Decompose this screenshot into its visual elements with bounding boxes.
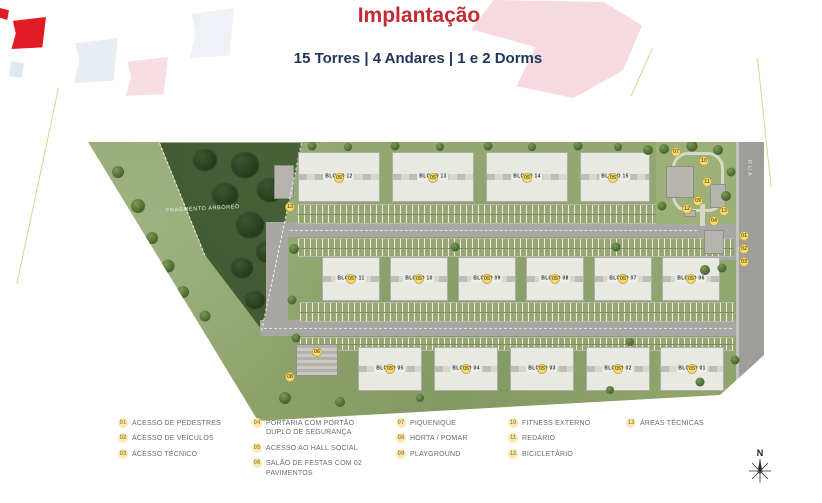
legend-item-label: ACESSO DE PEDESTRES bbox=[132, 418, 221, 428]
legend-num-badge: 01 bbox=[118, 418, 128, 428]
legend-column: 04PORTARIA COM PORTÃO DUPLO DE SEGURANÇA… bbox=[252, 418, 368, 483]
legend-item-label: ÁREAS TÉCNICAS bbox=[640, 418, 704, 428]
legend-column: 07PIQUENIQUE08HORTA / POMAR09PLAYGROUND bbox=[396, 418, 512, 464]
map-marker-05: 05 bbox=[428, 173, 438, 183]
tree-icon bbox=[606, 386, 614, 394]
legend-item-label: PLAYGROUND bbox=[410, 449, 461, 459]
map-marker-05: 05 bbox=[334, 173, 344, 183]
map-marker-04: 04 bbox=[709, 216, 719, 226]
legend-item-13: 13ÁREAS TÉCNICAS bbox=[626, 418, 742, 428]
legend-num-badge: 02 bbox=[118, 433, 128, 443]
tree-icon bbox=[731, 356, 740, 365]
map-marker-02: 02 bbox=[739, 244, 749, 254]
map-marker-13: 13 bbox=[719, 206, 729, 216]
legend-num-badge: 07 bbox=[396, 418, 406, 428]
tree-icon bbox=[658, 202, 667, 211]
legend-item-label: ACESSO TÉCNICO bbox=[132, 449, 197, 459]
forest-tree-icon bbox=[236, 212, 264, 238]
legend-num-badge: 13 bbox=[626, 418, 636, 428]
forest-tree-icon bbox=[193, 149, 217, 171]
legend-num-badge: 09 bbox=[396, 449, 406, 459]
tree-icon bbox=[292, 334, 301, 343]
tree-icon bbox=[727, 168, 736, 177]
tree-icon bbox=[279, 392, 291, 404]
map-marker-12: 12 bbox=[682, 204, 692, 214]
tree-icon bbox=[391, 142, 400, 151]
tree-icon bbox=[112, 166, 124, 178]
tree-icon bbox=[451, 243, 460, 252]
tree-icon bbox=[335, 397, 345, 407]
legend-item-01: 01ACESSO DE PEDESTRES bbox=[118, 418, 234, 428]
legend: 01ACESSO DE PEDESTRES02ACESSO DE VEÍCULO… bbox=[0, 418, 822, 500]
legend-num-badge: 10 bbox=[508, 418, 518, 428]
tree-icon bbox=[713, 145, 723, 155]
map-marker-05: 05 bbox=[482, 274, 492, 284]
legend-item-label: ACESSO DE VEÍCULOS bbox=[132, 433, 214, 443]
map-marker-08: 08 bbox=[285, 372, 295, 382]
parking-lot bbox=[298, 238, 734, 257]
legend-num-badge: 04 bbox=[252, 418, 262, 428]
tree-icon bbox=[308, 142, 317, 151]
parking-lot bbox=[300, 302, 734, 322]
tree-icon bbox=[700, 265, 710, 275]
map-marker-11: 11 bbox=[702, 177, 712, 187]
forest-tree-icon bbox=[231, 258, 253, 278]
forest-tree-icon bbox=[245, 291, 265, 309]
garden-building bbox=[666, 166, 694, 198]
legend-item-label: ACESSO AO HALL SOCIAL bbox=[266, 443, 358, 453]
legend-item-label: HORTA / POMAR bbox=[410, 433, 468, 443]
legend-num-badge: 06 bbox=[252, 458, 262, 468]
tree-icon bbox=[288, 296, 297, 305]
tree-icon bbox=[289, 244, 299, 254]
map-marker-05: 05 bbox=[618, 274, 628, 284]
legend-item-06: 06SALÃO DE FESTAS COM 02 PAVIMENTOS bbox=[252, 458, 368, 478]
tree-icon bbox=[574, 142, 583, 151]
map-marker-05: 05 bbox=[613, 364, 623, 374]
tree-icon bbox=[687, 141, 698, 152]
compass-icon bbox=[748, 458, 772, 484]
legend-num-badge: 08 bbox=[396, 433, 406, 443]
legend-item-label: REDÁRIO bbox=[522, 433, 555, 443]
legend-item-05: 05ACESSO AO HALL SOCIAL bbox=[252, 443, 368, 453]
tree-icon bbox=[659, 144, 669, 154]
map-marker-05: 05 bbox=[550, 274, 560, 284]
map-marker-05: 05 bbox=[686, 274, 696, 284]
map-marker-05: 05 bbox=[522, 173, 532, 183]
page-title: Implantação bbox=[16, 4, 822, 28]
tree-icon bbox=[344, 143, 352, 151]
map-marker-05: 05 bbox=[414, 274, 424, 284]
legend-num-badge: 12 bbox=[508, 449, 518, 459]
garden-path bbox=[700, 204, 705, 226]
legend-num-badge: 03 bbox=[118, 449, 128, 459]
tree-icon bbox=[643, 145, 653, 155]
legend-column: 10FITNESS EXTERNO11REDÁRIO12BICICLETÁRIO bbox=[508, 418, 624, 464]
legend-item-07: 07PIQUENIQUE bbox=[396, 418, 512, 428]
legend-column: 13ÁREAS TÉCNICAS bbox=[626, 418, 742, 433]
map-marker-05: 05 bbox=[608, 173, 618, 183]
tree-icon bbox=[416, 394, 424, 402]
page-subtitle: 15 Torres | 4 Andares | 1 e 2 Dorms bbox=[14, 50, 822, 67]
street-label: RUA bbox=[746, 160, 752, 290]
tree-icon bbox=[696, 378, 705, 387]
map-marker-05: 05 bbox=[346, 274, 356, 284]
internal-road bbox=[266, 222, 288, 320]
compass: N bbox=[748, 448, 772, 489]
legend-item-02: 02ACESSO DE VEÍCULOS bbox=[118, 433, 234, 443]
legend-item-label: BICICLETÁRIO bbox=[522, 449, 573, 459]
legend-item-11: 11REDÁRIO bbox=[508, 433, 624, 443]
tree-icon bbox=[612, 243, 621, 252]
tree-icon bbox=[177, 286, 189, 298]
legend-item-label: PIQUENIQUE bbox=[410, 418, 456, 428]
legend-item-08: 08HORTA / POMAR bbox=[396, 433, 512, 443]
tree-icon bbox=[721, 191, 731, 201]
tree-icon bbox=[614, 143, 622, 151]
legend-item-label: PORTARIA COM PORTÃO DUPLO DE SEGURANÇA bbox=[266, 418, 368, 438]
map-marker-10: 10 bbox=[699, 156, 709, 166]
map-marker-09: 09 bbox=[693, 196, 703, 206]
gatehouse-building bbox=[704, 230, 724, 254]
forest-tree-icon bbox=[231, 152, 259, 178]
legend-item-10: 10FITNESS EXTERNO bbox=[508, 418, 624, 428]
legend-item-12: 12BICICLETÁRIO bbox=[508, 449, 624, 459]
tree-icon bbox=[131, 199, 145, 213]
legend-num-badge: 11 bbox=[508, 433, 518, 443]
legend-num-badge: 05 bbox=[252, 443, 262, 453]
tree-icon bbox=[436, 143, 444, 151]
legend-item-label: SALÃO DE FESTAS COM 02 PAVIMENTOS bbox=[266, 458, 368, 478]
tree-icon bbox=[200, 311, 211, 322]
tree-icon bbox=[484, 142, 493, 151]
legend-column: 01ACESSO DE PEDESTRES02ACESSO DE VEÍCULO… bbox=[118, 418, 234, 464]
header: Implantação 15 Torres | 4 Andares | 1 e … bbox=[0, 0, 822, 67]
legend-item-03: 03ACESSO TÉCNICO bbox=[118, 449, 234, 459]
legend-item-09: 09PLAYGROUND bbox=[396, 449, 512, 459]
map-marker-13: 13 bbox=[285, 202, 295, 212]
legend-item-04: 04PORTARIA COM PORTÃO DUPLO DE SEGURANÇA bbox=[252, 418, 368, 438]
legend-item-label: FITNESS EXTERNO bbox=[522, 418, 590, 428]
tree-icon bbox=[146, 232, 158, 244]
page: Implantação 15 Torres | 4 Andares | 1 e … bbox=[0, 0, 822, 503]
tree-icon bbox=[718, 264, 727, 273]
tree-icon bbox=[162, 260, 175, 273]
map-marker-03: 03 bbox=[739, 257, 749, 267]
tree-icon bbox=[528, 143, 536, 151]
map-marker-05: 05 bbox=[537, 364, 547, 374]
map-marker-05: 05 bbox=[385, 364, 395, 374]
internal-road bbox=[260, 320, 736, 336]
internal-road bbox=[266, 222, 736, 237]
tree-icon bbox=[626, 338, 634, 346]
map-marker-01: 01 bbox=[739, 231, 749, 241]
decorative-line bbox=[16, 88, 59, 284]
map-marker-07: 07 bbox=[671, 147, 681, 157]
map-marker-05: 05 bbox=[461, 364, 471, 374]
compass-north-label: N bbox=[748, 448, 772, 458]
map-marker-06: 06 bbox=[312, 347, 322, 357]
map-marker-05: 05 bbox=[687, 364, 697, 374]
